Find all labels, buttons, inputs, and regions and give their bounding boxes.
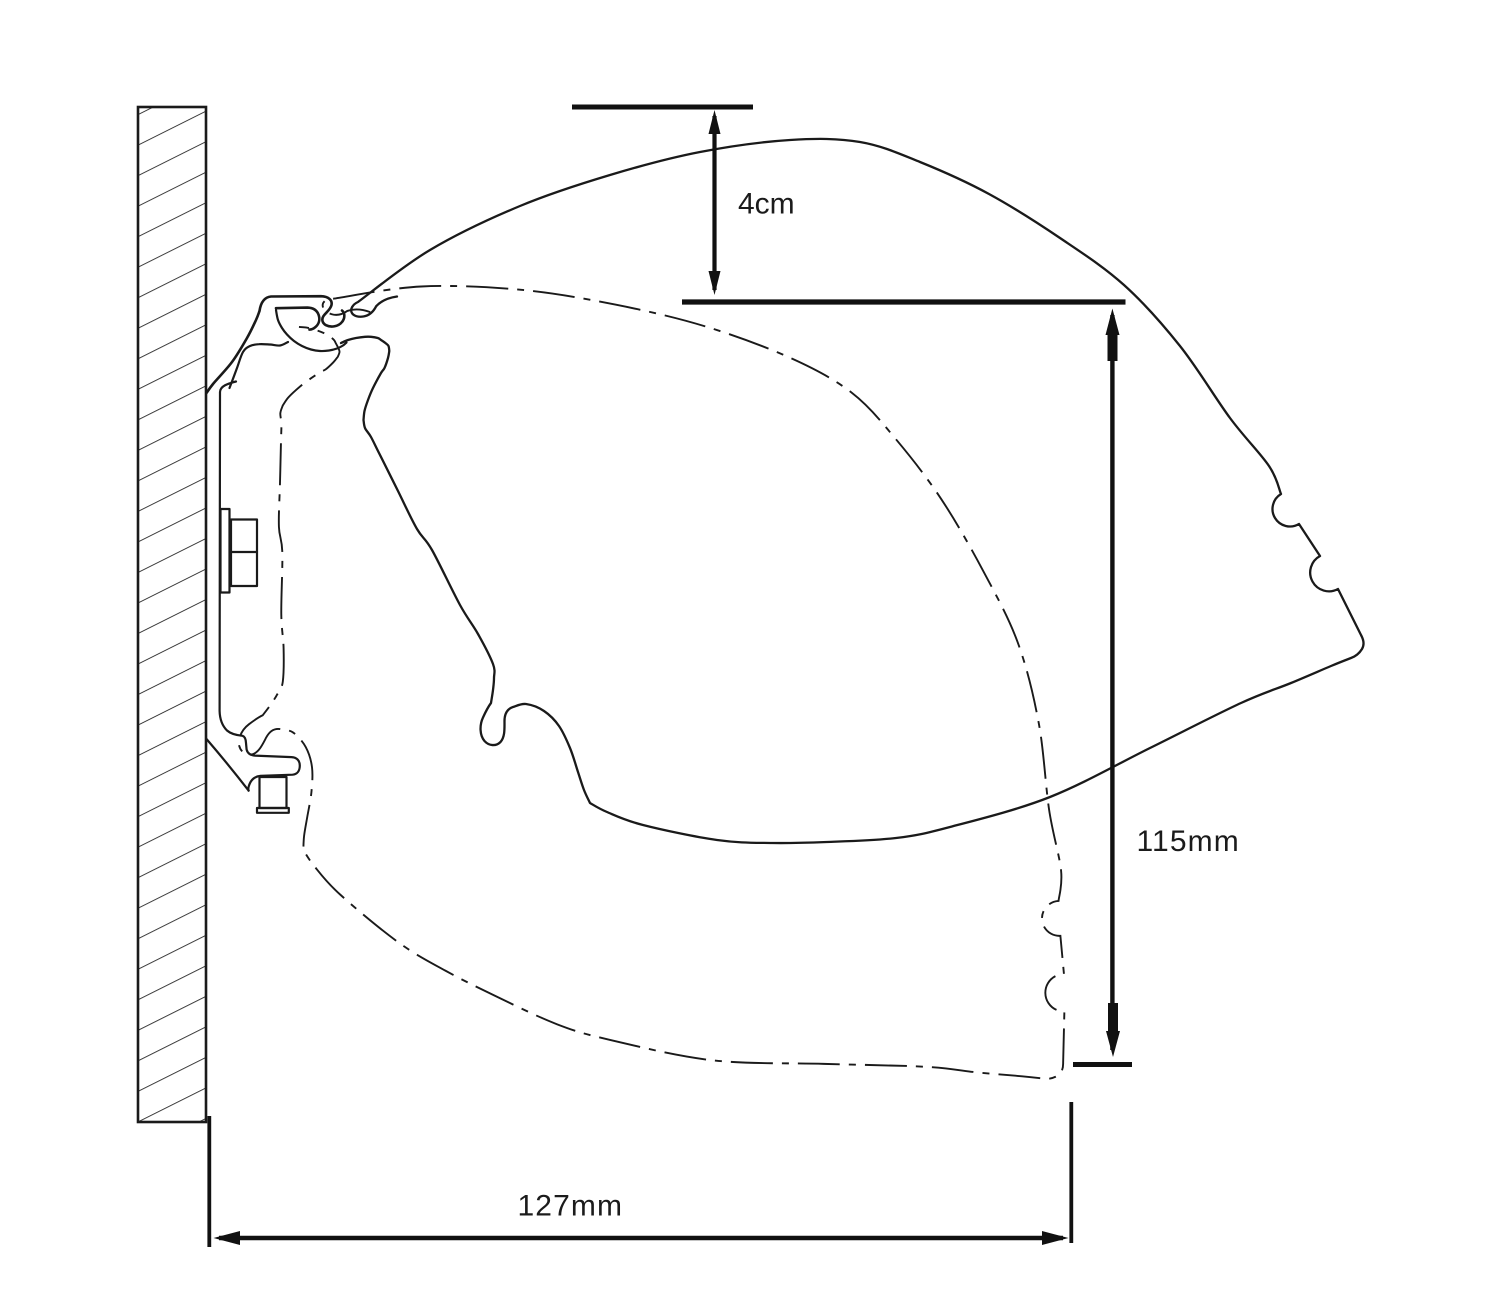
svg-text:115mm: 115mm [1137, 825, 1240, 858]
svg-text:4cm: 4cm [738, 188, 795, 221]
svg-text:127mm: 127mm [518, 1190, 624, 1223]
